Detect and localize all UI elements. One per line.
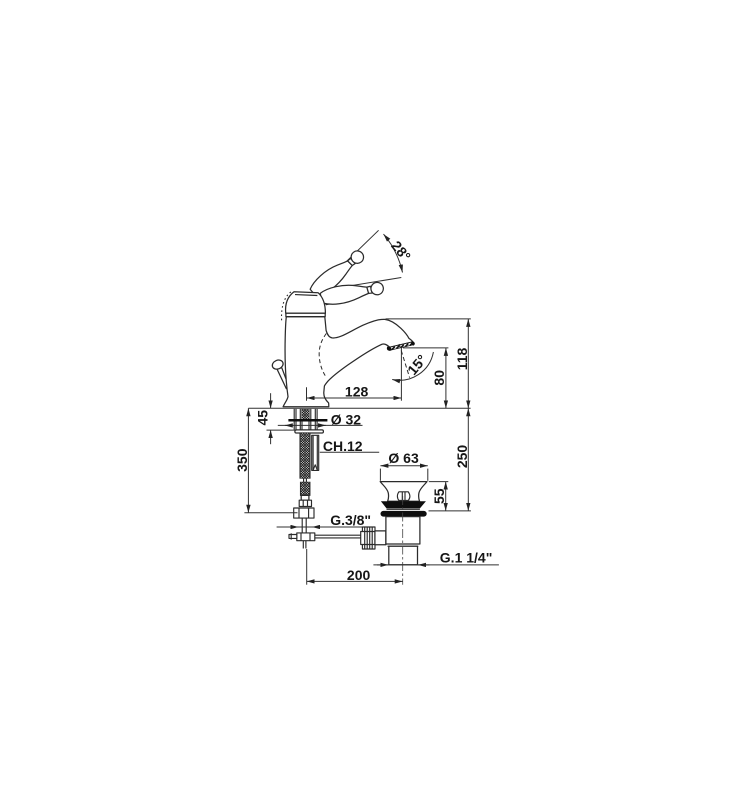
svg-text:55: 55	[431, 488, 447, 504]
svg-text:Ø 63: Ø 63	[388, 450, 419, 466]
svg-text:G.1 1/4": G.1 1/4"	[440, 549, 493, 565]
svg-text:G.3/8": G.3/8"	[330, 512, 371, 528]
svg-text:45: 45	[254, 410, 270, 426]
svg-text:200: 200	[347, 567, 371, 583]
svg-text:CH.12: CH.12	[323, 438, 363, 454]
svg-text:118: 118	[454, 347, 470, 370]
svg-text:350: 350	[234, 448, 250, 472]
svg-text:250: 250	[454, 445, 470, 469]
svg-text:128: 128	[345, 383, 369, 399]
svg-text:80: 80	[431, 370, 447, 386]
svg-text:Ø 32: Ø 32	[331, 411, 362, 427]
